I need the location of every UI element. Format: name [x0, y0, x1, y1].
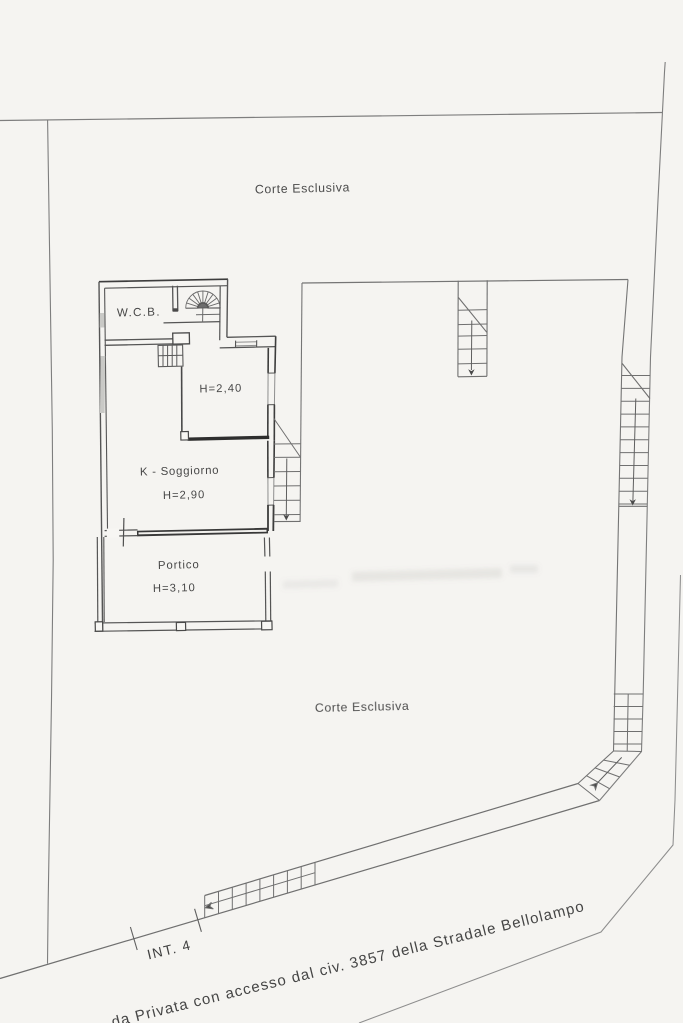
svg-text:H=3,10: H=3,10: [153, 582, 196, 595]
svg-text:H=2,90: H=2,90: [163, 489, 206, 502]
svg-text:W.C.B.: W.C.B.: [117, 306, 161, 320]
svg-text:K - Soggiorno: K - Soggiorno: [140, 465, 220, 479]
svg-text:Portico: Portico: [158, 559, 200, 572]
svg-text:H=2,40: H=2,40: [199, 383, 242, 396]
svg-text:Corte Esclusiva: Corte Esclusiva: [315, 699, 410, 715]
svg-text:Corte Esclusiva: Corte Esclusiva: [255, 180, 350, 196]
